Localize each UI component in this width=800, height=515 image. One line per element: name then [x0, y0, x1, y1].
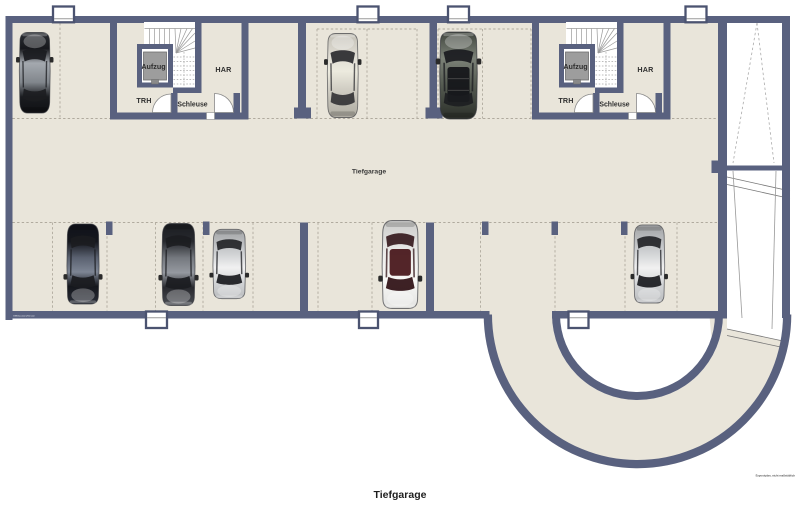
svg-text:Exposéplan, nicht maßstäblich: Exposéplan, nicht maßstäblich	[756, 474, 796, 478]
svg-text:GSEducationalVersion: GSEducationalVersion	[13, 315, 36, 318]
svg-text:Aufzug: Aufzug	[563, 62, 587, 71]
svg-text:HAR: HAR	[637, 65, 654, 74]
svg-text:TRH: TRH	[136, 96, 151, 105]
svg-text:Tiefgarage: Tiefgarage	[352, 169, 386, 176]
svg-text:HAR: HAR	[215, 65, 232, 74]
svg-text:TRH: TRH	[558, 96, 573, 105]
svg-text:Tiefgarage: Tiefgarage	[374, 489, 427, 501]
svg-text:Aufzug: Aufzug	[141, 62, 165, 71]
svg-text:Schleuse: Schleuse	[599, 102, 629, 109]
svg-text:Schleuse: Schleuse	[177, 102, 207, 109]
